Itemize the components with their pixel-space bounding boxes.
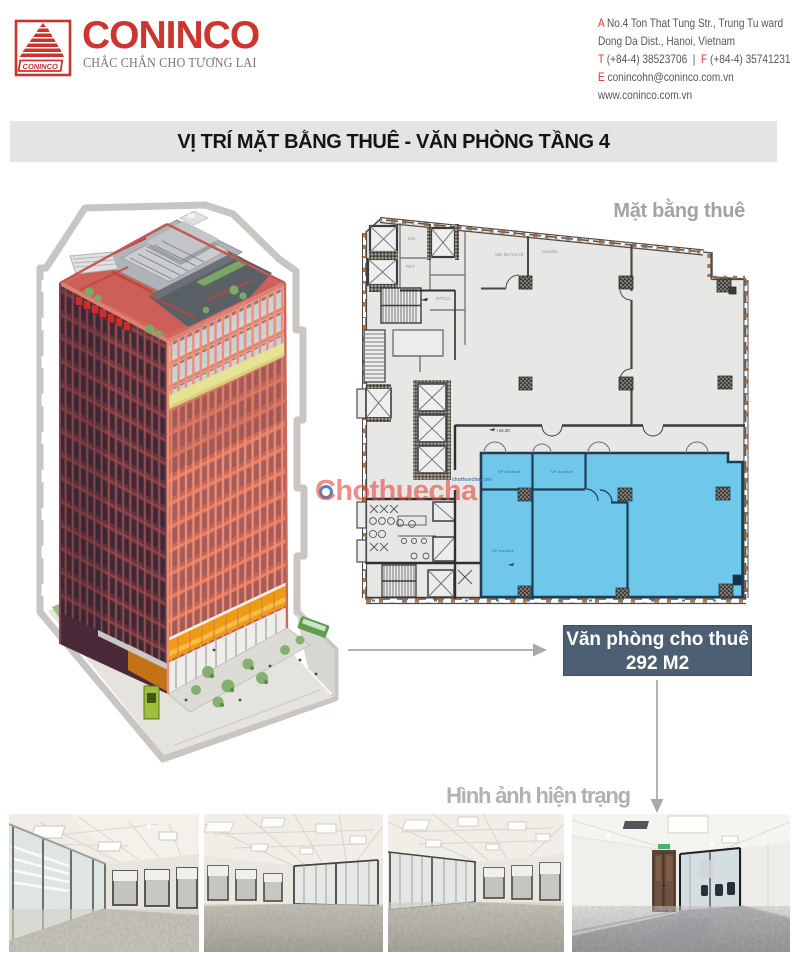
svg-text:Corridor: Corridor xyxy=(542,249,558,254)
svg-text:P.PCCC: P.PCCC xyxy=(436,296,451,301)
svg-text:CONINCO: CONINCO xyxy=(22,62,59,71)
svg-text:Kho: Kho xyxy=(408,236,416,241)
svg-text:+15.30: +15.30 xyxy=(496,428,510,433)
svg-text:P.KT: P.KT xyxy=(406,264,415,269)
svg-text:VP cho thuê: VP cho thuê xyxy=(551,469,573,474)
svg-text:VP cho thuê: VP cho thuê xyxy=(492,548,514,553)
svg-text:Văn thư lưu trữ: Văn thư lưu trữ xyxy=(495,252,524,257)
svg-text:VP cho thuê: VP cho thuê xyxy=(498,469,520,474)
